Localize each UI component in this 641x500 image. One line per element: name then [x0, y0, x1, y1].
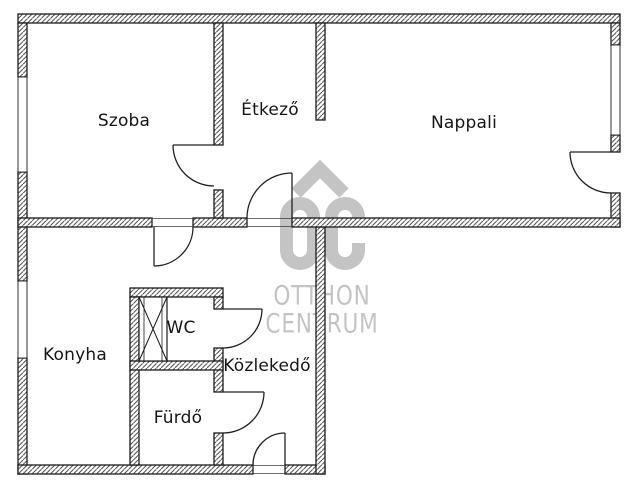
wall-szoba-etkezo-2	[214, 190, 223, 218]
door-szoba-arc	[173, 145, 214, 186]
door-furdo-arc	[223, 392, 264, 433]
floorplan-canvas: OTTHON CENTRUM	[0, 0, 641, 500]
wall-wc-right-3	[214, 433, 223, 465]
window-nappali-icon	[611, 45, 620, 135]
wall-bottom-1	[18, 465, 253, 474]
threshold-etkezo	[247, 219, 292, 227]
threshold-entry	[253, 466, 285, 474]
door-etkezo-arc	[247, 173, 292, 218]
wall-right-1	[611, 23, 620, 45]
wall-middle-3	[292, 218, 620, 227]
door-nappali-icon	[570, 152, 611, 193]
wall-wc-furdo-divider	[130, 361, 223, 370]
wall-middle-2	[193, 218, 247, 227]
door-entry-arc	[253, 433, 285, 465]
door-szoba-konyha-arc	[154, 227, 193, 266]
wall-etkezo-nappali	[316, 23, 325, 120]
wall-left-1	[18, 23, 27, 77]
door-etkezo-icon	[247, 173, 292, 218]
door-szoba-konyha-icon	[154, 227, 193, 266]
window-konyha-icon	[18, 281, 27, 358]
wall-middle-1	[18, 218, 152, 227]
door-szoba-icon	[173, 145, 214, 186]
door-furdo-icon	[223, 392, 264, 433]
floorplan-drawing	[0, 0, 641, 500]
shaft-icon	[139, 297, 167, 361]
wall-szoba-etkezo-1	[214, 23, 223, 145]
threshold-szoba-konyha	[152, 219, 193, 227]
wall-left-3	[18, 358, 27, 474]
wall-wc-top	[130, 288, 223, 297]
wall-top	[18, 14, 620, 23]
door-nappali-arc	[570, 152, 611, 193]
door-entry-icon	[253, 433, 285, 465]
wall-right-2	[611, 135, 620, 152]
door-wc-arc	[223, 309, 262, 348]
door-wc-icon	[223, 309, 262, 348]
wall-wc-left	[130, 297, 139, 465]
window-szoba-icon	[18, 77, 27, 172]
wall-lower-right	[316, 227, 325, 474]
wall-wc-right-1	[214, 297, 223, 309]
